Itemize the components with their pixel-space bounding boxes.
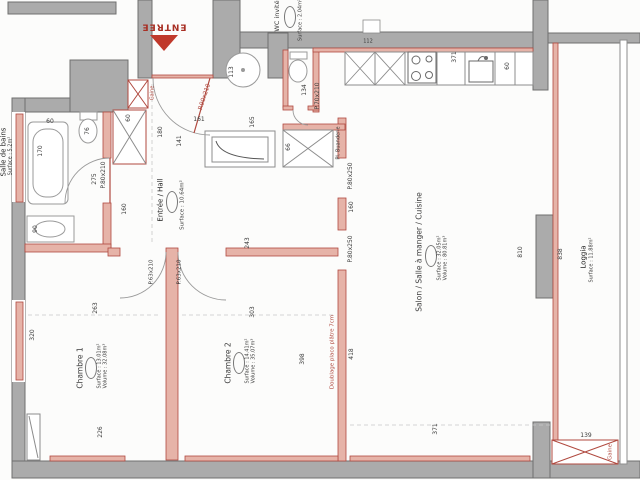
door-wc-label: P.70x210	[315, 82, 321, 109]
door-living-lower-label: P.80x250	[348, 235, 354, 262]
room-bedroom2-name: Chambre 2	[224, 342, 232, 383]
dim-bed1-bottom: 226	[98, 426, 104, 437]
dim-wc-depth: 134	[302, 84, 308, 95]
dim-bath-width: 160	[122, 203, 128, 214]
floor-plan: ENTREE Salle de bains Surface : 5.2m² WC…	[0, 0, 640, 480]
bathtub	[28, 122, 68, 204]
dim-bath-vanity: 90	[33, 225, 39, 233]
dim-bed2-right: 418	[349, 348, 355, 359]
door-bedroom2-label: P.63x210	[177, 260, 183, 285]
dim-bath-closet: 60	[126, 114, 132, 122]
dim-hall-w2: 141	[177, 135, 183, 146]
dim-bed2-top: 303	[250, 306, 256, 317]
hall-sideboard	[205, 131, 275, 167]
duct-loggia-label: Gaine	[608, 444, 614, 460]
dim-tub-length: 170	[38, 145, 44, 156]
room-loggia-surface: Surface : 11.88m²	[590, 237, 595, 282]
door-bathroom-label: P.80x210	[101, 161, 107, 188]
dim-hall-w1: 180	[158, 126, 164, 137]
door-living-upper-label: P.80x250	[348, 162, 354, 189]
room-bathroom-name: Salle de bains	[1, 128, 8, 177]
room-bedroom2-oval	[233, 352, 245, 374]
loggia-outer-rail	[620, 40, 627, 464]
room-laundry-name: Pl. Buanderie	[337, 126, 342, 159]
dim-loggia-length: 838	[558, 248, 564, 259]
room-loggia-name: Loggia	[581, 245, 588, 268]
entrance-label: ENTREE	[141, 22, 186, 31]
dim-duct-shaft: 112	[363, 40, 373, 45]
dim-kitchen-run: 371	[452, 51, 458, 62]
dim-bed1-left: 320	[30, 329, 36, 340]
room-wc-oval	[284, 6, 296, 28]
dim-living-bottom: 371	[433, 423, 439, 434]
dim-bed2-mid: 398	[300, 353, 306, 364]
door-bedroom1-label: P.63x210	[149, 260, 155, 285]
duct-box-top	[128, 80, 148, 108]
room-hall-oval	[166, 191, 178, 213]
dim-living-height: 810	[518, 246, 524, 257]
dim-lobby-h: 165	[250, 116, 256, 127]
room-bathroom-surface: Surface : 5.2m²	[9, 137, 14, 176]
room-hall-surface: Surface : 10.64m²	[180, 180, 186, 230]
dim-heater: 113	[229, 66, 235, 77]
dim-bed1-top: 263	[93, 302, 99, 313]
dim-laundry-w: 66	[286, 143, 292, 151]
dim-bath-length: 275	[92, 173, 98, 184]
entrance-arrow-icon	[150, 35, 178, 51]
plan-drawing	[0, 0, 640, 480]
dim-wall-between-doors: 160	[349, 201, 355, 212]
room-living-oval	[425, 245, 437, 267]
lining-annotation: Doublage placo plâtre 7cm	[330, 315, 336, 389]
room-bedroom1-oval	[85, 357, 97, 379]
wc-toilet	[289, 52, 307, 82]
room-bedroom2-volume: Volume : 35.07m³	[252, 339, 257, 384]
dim-bath-toilet: 76	[85, 127, 91, 135]
dim-kitchen-depth: 60	[505, 62, 511, 70]
room-bedroom1-volume: Volume : 32.08m³	[104, 344, 109, 389]
room-bedroom1-name: Chambre 1	[76, 347, 84, 388]
room-wc-name: WC invité	[274, 0, 281, 31]
duct-top-label: Gaine	[151, 86, 156, 101]
stove	[408, 52, 436, 83]
room-living-name: Salon / Salle à manger / Cuisine	[415, 192, 423, 311]
window-leaf	[27, 414, 40, 460]
room-living-volume: Volume : 80.81m³	[444, 236, 449, 281]
dim-hall-l: 161	[193, 117, 204, 123]
room-hall-name: Entrée / Hall	[158, 178, 165, 221]
dim-hall-d: 243	[245, 237, 251, 248]
dim-tub-width: 60	[46, 119, 54, 125]
dim-loggia-width: 139	[580, 433, 591, 439]
room-wc-surface: Surface : 2.04m²	[299, 0, 304, 41]
